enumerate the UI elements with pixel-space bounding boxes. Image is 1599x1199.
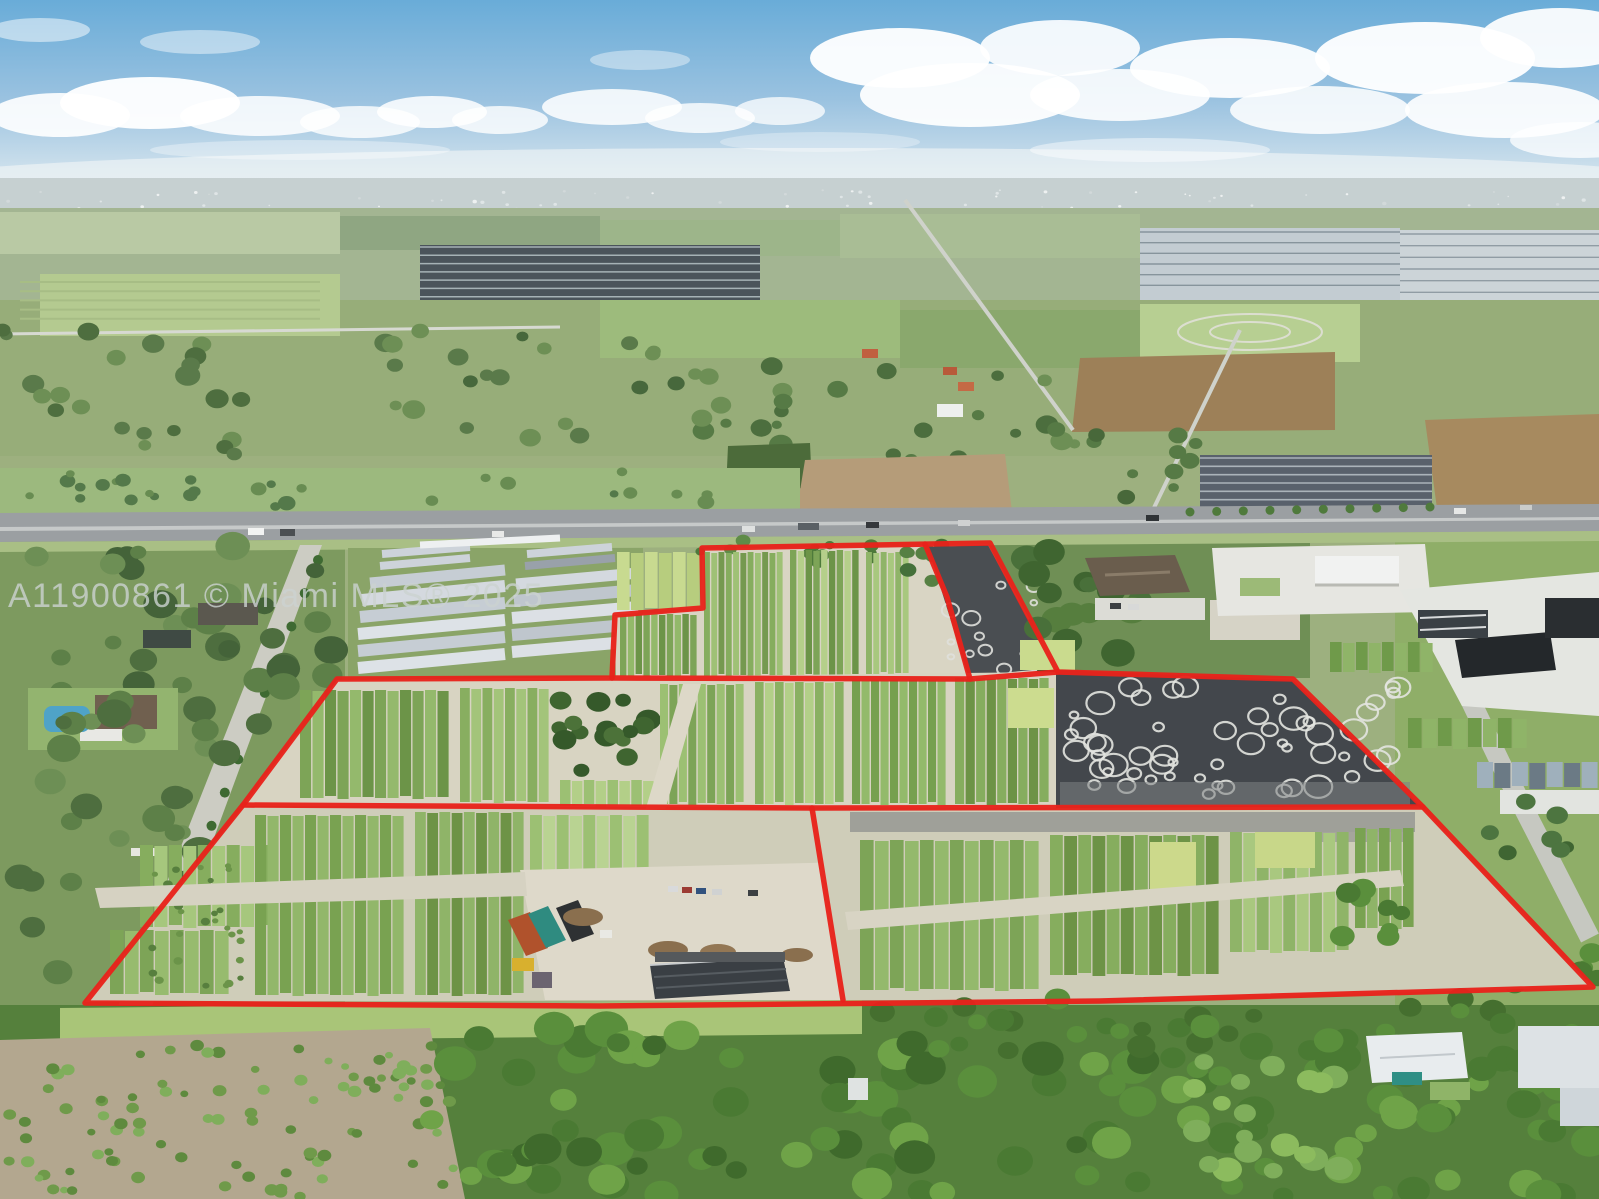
north-frontage-trees-item xyxy=(1101,639,1135,667)
orchard-dots-item xyxy=(237,929,243,934)
forest-canopy-item xyxy=(1335,1137,1364,1160)
distant-suburb-buildings-item xyxy=(1041,206,1043,208)
forest-canopy-item xyxy=(997,1146,1033,1175)
tree-cluster-item xyxy=(900,547,914,559)
palm-grove-light-item xyxy=(1183,1079,1206,1098)
tree-cluster-item xyxy=(647,346,661,357)
highway-median-trees-item xyxy=(1292,505,1301,514)
left-tree-canopy-item xyxy=(109,830,129,847)
cloud-wisp xyxy=(1030,138,1270,162)
distant-field xyxy=(340,216,600,250)
distant-suburb-buildings-item xyxy=(996,192,999,195)
black-shade-block xyxy=(1455,632,1556,678)
nursery-rows-row xyxy=(825,683,834,804)
tree-cluster-item xyxy=(411,324,429,338)
dirt-pile xyxy=(781,948,813,962)
nursery-stock-rows-row xyxy=(1453,719,1467,749)
nursery-stock-rows-row xyxy=(1421,643,1433,672)
nursery-rows-row xyxy=(775,682,784,802)
distant-suburb-buildings-item xyxy=(539,204,542,206)
tree-cluster-item xyxy=(1117,490,1135,505)
property-boundary-internal-3 xyxy=(243,805,1423,808)
nursery-rows-row xyxy=(873,553,879,674)
nursery-rows-row xyxy=(909,680,917,804)
nursery-rows-row xyxy=(821,550,827,675)
nursery-rows-row xyxy=(460,688,470,802)
orchard-tree-rows-item xyxy=(3,1109,16,1119)
shed-purple xyxy=(532,972,552,988)
distant-suburb-buildings-item xyxy=(964,204,967,207)
nursery-stock-rows-row xyxy=(1423,719,1437,748)
forest-fringe-item xyxy=(968,1014,986,1029)
distant-suburb-buildings-item xyxy=(140,205,144,208)
forest-fringe-item xyxy=(998,1042,1019,1059)
yellow-green-field-notch-row xyxy=(673,552,686,609)
tree-cluster-item xyxy=(621,336,638,350)
distant-suburb-buildings-item xyxy=(1497,204,1499,206)
forest-canopy-item xyxy=(524,1134,562,1165)
nursery-rows-row xyxy=(637,815,649,871)
distant-suburb-buildings-item xyxy=(1582,198,1586,201)
tree-cluster-item xyxy=(711,397,731,414)
orchard-tree-rows-item xyxy=(304,1148,318,1159)
distant-pasture xyxy=(0,212,340,254)
tree-cluster-item xyxy=(448,349,469,366)
tree-cluster-item xyxy=(1010,429,1021,438)
tree-cluster-item xyxy=(167,425,181,436)
tree-cluster-item xyxy=(114,422,130,435)
palm-grove-light-item xyxy=(1325,1157,1353,1180)
nursery-stock-rows-row xyxy=(1330,642,1342,672)
vehicle xyxy=(1520,505,1532,510)
hedge-row-item xyxy=(1516,794,1536,810)
nursery-rows-row xyxy=(393,816,404,994)
distant-suburb-buildings-item xyxy=(505,203,509,206)
nursery-stock-rows-row xyxy=(1343,643,1355,672)
palm-tree-row-item xyxy=(286,622,296,632)
orchard-tree-rows-item xyxy=(65,1168,74,1176)
palm-tree-row-item xyxy=(207,821,217,831)
distant-suburb-buildings-item xyxy=(39,191,42,193)
nursery-rows-row xyxy=(380,815,391,994)
nursery-rows xyxy=(790,550,859,677)
distant-suburb-buildings-item xyxy=(784,193,787,195)
nursery-rows-row xyxy=(293,816,304,996)
forest-canopy-item xyxy=(1435,1170,1461,1191)
forest-canopy-item xyxy=(607,1033,630,1052)
orchard-tree-rows-item xyxy=(203,1114,214,1123)
orchard-tree-rows-item xyxy=(324,1058,332,1065)
left-tree-canopy-item xyxy=(130,546,146,559)
tree-cluster-item xyxy=(142,335,164,353)
forest-canopy-item xyxy=(1355,1124,1377,1142)
forest-fringe-item xyxy=(928,1040,949,1057)
nursery-rows-row xyxy=(375,690,386,798)
orchard-block-dense-item xyxy=(622,725,638,738)
orchard-tree-rows-item xyxy=(87,1129,95,1136)
tree-cluster-item xyxy=(1168,428,1187,444)
tree-cluster-item xyxy=(1336,883,1361,903)
orchard-tree-rows-item xyxy=(98,1111,109,1120)
vehicle xyxy=(1110,603,1121,609)
tree-cluster-item xyxy=(827,381,848,398)
forest-fringe-item xyxy=(950,1037,968,1052)
nursery-rows-row xyxy=(439,812,450,993)
distant-suburb-buildings-item xyxy=(846,205,849,207)
palm-grove-light-item xyxy=(1294,1146,1316,1164)
nursery-rows-row xyxy=(740,553,746,675)
orchard-tree-rows-item xyxy=(126,1103,139,1113)
orchard-tree-rows-item xyxy=(92,1150,104,1160)
orchard-tree-rows-item xyxy=(408,1160,418,1168)
nursery-rows-row xyxy=(608,780,619,805)
orchard-tree-rows-item xyxy=(213,1085,227,1096)
left-tree-canopy-item xyxy=(260,628,285,649)
orchard-tree-rows-item xyxy=(449,1165,458,1173)
forest-canopy-item xyxy=(719,1048,744,1068)
orchard-tree-rows-item xyxy=(351,1129,362,1138)
left-tree-canopy-item xyxy=(130,649,157,672)
forest-fringe-item xyxy=(987,1009,1014,1031)
cloud xyxy=(452,106,548,134)
orchard-dots-item xyxy=(197,865,203,870)
tree-cluster-item xyxy=(490,369,510,385)
awning-teal xyxy=(1392,1072,1422,1085)
nursery-rows-row xyxy=(464,812,475,994)
distant-suburb-buildings-item xyxy=(1135,191,1138,193)
left-tree-canopy-item xyxy=(71,794,102,820)
nursery-rows xyxy=(415,812,524,996)
nursery-rows-row xyxy=(770,553,776,677)
left-tree-canopy-item xyxy=(35,769,66,795)
orchard-dots-item xyxy=(176,931,183,937)
forest-canopy-item xyxy=(1379,1096,1411,1122)
forest-fringe-item xyxy=(1245,1009,1262,1023)
nursery-rows-row xyxy=(620,614,626,676)
tree-row-north-of-highway-item xyxy=(426,496,439,506)
white-building-wing xyxy=(1560,1088,1599,1126)
orchard-tree-rows-item xyxy=(294,1075,307,1086)
orchard-tree-rows-item xyxy=(364,1076,376,1086)
orchard-tree-rows-item xyxy=(219,1181,231,1191)
tree-cluster-item xyxy=(699,368,719,384)
orchard-tree-rows-item xyxy=(309,1096,319,1104)
nursery-rows-row xyxy=(919,681,927,804)
parked-car xyxy=(682,887,692,893)
nursery-rows-row xyxy=(938,681,946,805)
forest-canopy-item xyxy=(1421,1108,1443,1126)
tree-cluster-item xyxy=(50,387,70,403)
tree-cluster-item xyxy=(720,419,731,428)
nursery-rows-row xyxy=(476,813,487,994)
left-tree-canopy-item xyxy=(142,805,175,832)
tree-cluster-item xyxy=(382,336,403,353)
nursery-rows-row xyxy=(881,681,889,805)
palm-grove-light-item xyxy=(1308,1072,1334,1093)
orchard-tree-rows-item xyxy=(157,1080,167,1088)
nursery-rows-row xyxy=(631,780,642,806)
orchard-block-dense-item xyxy=(573,764,589,777)
distant-suburb-buildings-item xyxy=(1118,205,1121,208)
tree-cluster-item xyxy=(33,389,51,404)
forest-canopy-item xyxy=(958,1065,997,1097)
nursery-rows-row xyxy=(987,679,996,805)
tree-row-north-of-highway-item xyxy=(115,474,131,487)
nursery-rows-row xyxy=(185,931,199,993)
nursery-rows-row xyxy=(777,552,783,675)
forest-canopy-item xyxy=(810,1127,839,1151)
parked-car xyxy=(748,890,758,896)
palm-grove-light-item xyxy=(1199,1156,1219,1173)
nursery-rows-row xyxy=(300,690,311,798)
nursery-rows-row xyxy=(363,691,374,797)
nursery-rows-row xyxy=(651,614,657,675)
orchard-tree-rows-item xyxy=(394,1094,404,1102)
nursery-rows-row xyxy=(852,680,860,804)
nursery-stock-rows-row xyxy=(1408,642,1420,672)
cloud xyxy=(1230,86,1410,134)
nursery-rows-row xyxy=(928,680,936,802)
distant-suburb-buildings-item xyxy=(268,205,270,206)
orchard-block-dense-item xyxy=(553,730,577,750)
left-tree-canopy-item xyxy=(20,917,45,938)
nursery-rows-row xyxy=(643,615,649,677)
orchard-dots-item xyxy=(223,983,230,989)
palm-grove-light-item xyxy=(1260,1056,1285,1076)
blue-gray-rows-row xyxy=(1529,763,1545,789)
orchard-tree-rows-item xyxy=(377,1074,386,1081)
forest-fringe-item xyxy=(1134,1022,1152,1036)
yellow-green-field-notch-row xyxy=(659,553,672,611)
orchard-tree-rows-item xyxy=(20,1133,32,1143)
distant-suburb-buildings-item xyxy=(1089,191,1092,194)
distant-suburb-buildings-item xyxy=(840,196,843,198)
nursery-rows-row xyxy=(388,691,399,798)
nursery-rows-row xyxy=(955,678,964,804)
left-tree-canopy-item xyxy=(43,960,72,984)
tree-cluster-item xyxy=(1047,422,1065,437)
tree-row-north-of-highway-item xyxy=(671,490,682,499)
frontage-lawn xyxy=(1240,578,1280,596)
tree-cluster-item xyxy=(1165,464,1184,479)
nursery-rows-row xyxy=(501,813,512,995)
nursery-stock-rows-row xyxy=(1382,642,1394,671)
palm-grove-light-item xyxy=(1234,1104,1256,1122)
aerial-photo-canvas: A11900861 © Miami MLS® 2025 xyxy=(0,0,1599,1199)
nursery-rows-row xyxy=(765,683,774,804)
tree-cluster-item xyxy=(1169,445,1186,459)
nursery-rows-row xyxy=(505,688,515,801)
tree-cluster-item xyxy=(1168,483,1179,492)
nursery-rows-row xyxy=(890,680,898,803)
nursery-rows-row xyxy=(785,683,794,805)
nursery-rows-row xyxy=(415,812,426,995)
distant-suburb-buildings-item xyxy=(441,199,443,201)
orchard-tree-rows-item xyxy=(281,1168,292,1177)
tree-cluster-item xyxy=(877,363,897,379)
nursery-rows-row xyxy=(560,780,571,806)
distant-suburb-buildings-item xyxy=(858,191,862,194)
orchard-tree-rows-item xyxy=(35,1175,44,1182)
nursery-rows-row xyxy=(733,552,739,675)
orchard-dots-item xyxy=(202,983,209,989)
dark-barn-roof xyxy=(1418,610,1488,638)
distant-suburb-buildings-item xyxy=(1305,194,1307,196)
loader-yellow xyxy=(512,958,534,971)
left-tree-canopy-item xyxy=(267,673,299,700)
residential-roof-orange xyxy=(958,382,974,391)
nursery-rows-row xyxy=(488,812,499,995)
forest-canopy-item xyxy=(1075,1165,1099,1185)
nursery-rows-row xyxy=(368,816,379,996)
nursery-rows-row xyxy=(140,930,154,992)
nursery-rows-row xyxy=(452,813,463,996)
distant-suburb-buildings-item xyxy=(563,190,566,192)
tree-row-north-of-highway-item xyxy=(270,502,280,511)
orchard-dots-item xyxy=(174,957,183,965)
left-tree-canopy-item xyxy=(51,650,70,666)
nursery-rows-row xyxy=(815,682,824,804)
nursery-rows-row xyxy=(719,552,725,674)
nursery-stock-rows-row xyxy=(1483,719,1497,747)
orchard-block-dense-item xyxy=(616,748,637,766)
tree-row-north-of-highway-item xyxy=(296,484,306,493)
orchard-tree-rows-item xyxy=(348,1086,362,1097)
distant-suburb-buildings-item xyxy=(851,190,854,192)
nursery-rows-row xyxy=(726,685,734,804)
nursery-rows-row xyxy=(155,931,169,995)
nursery-rows-row xyxy=(483,688,493,800)
nursery-rows-row xyxy=(806,550,812,674)
distant-suburb-buildings-item xyxy=(651,192,653,194)
tree-cluster-item xyxy=(914,423,933,438)
distant-suburb-buildings-item xyxy=(1346,193,1349,195)
patio-white xyxy=(80,729,122,741)
orchard-dots-item xyxy=(237,976,243,981)
forest-canopy-item xyxy=(1119,1086,1156,1117)
nursery-rows-row xyxy=(736,684,744,802)
orchard-tree-rows-item xyxy=(97,1096,106,1103)
forest-canopy-item xyxy=(702,1146,726,1166)
tree-cluster-item xyxy=(774,394,793,409)
vehicle xyxy=(866,522,879,528)
residential-roof-orange xyxy=(862,349,878,358)
nursery-rows-row xyxy=(528,688,538,802)
tree-row-north-of-highway-item xyxy=(185,475,196,484)
left-tree-canopy-item xyxy=(183,696,216,723)
tree-row-north-of-highway-item xyxy=(702,490,713,499)
distant-suburb-buildings-item xyxy=(157,194,160,196)
forest-fringe-item xyxy=(1399,998,1422,1017)
distant-suburb-buildings-item xyxy=(1213,197,1216,199)
orchard-tree-rows-item xyxy=(4,1157,15,1166)
nursery-stock-rows-row xyxy=(1395,643,1407,671)
tree-row-north-of-highway-item xyxy=(617,467,628,476)
forest-canopy-item xyxy=(588,1165,625,1195)
nursery-rows-row xyxy=(900,681,908,803)
blue-gray-rows-row xyxy=(1564,763,1580,787)
orchard-tree-rows-item xyxy=(242,1172,255,1182)
vehicle xyxy=(492,531,504,537)
orchard-block-dense-item xyxy=(615,694,631,707)
distant-suburb-buildings-item xyxy=(473,200,477,204)
nursery-rows-row xyxy=(530,815,542,873)
vehicle xyxy=(1146,515,1159,521)
distant-suburb-buildings-item xyxy=(1556,203,1559,206)
shade-cloth-fade xyxy=(1060,782,1410,806)
tree-cluster-item xyxy=(558,418,573,430)
orchard-tree-rows-item xyxy=(392,1068,406,1079)
orchard-tree-rows-item xyxy=(426,1041,438,1050)
orchard-block-dense-item xyxy=(550,692,572,710)
nursery-rows-row xyxy=(682,614,688,674)
nursery-rows-row xyxy=(790,550,796,676)
nursery-rows-row xyxy=(355,815,366,993)
orchard-tree-rows-item xyxy=(258,1085,270,1095)
forest-fringe-item xyxy=(1218,1026,1238,1042)
white-farm-house xyxy=(937,404,963,417)
distant-suburb-buildings-item xyxy=(378,206,380,208)
orchard-tree-rows-item xyxy=(131,1172,145,1183)
tree-cluster-item xyxy=(1038,375,1052,387)
distant-suburb-buildings-item xyxy=(214,192,218,195)
nursery-rows-row xyxy=(762,552,768,674)
yellow-green-block xyxy=(1255,832,1315,868)
blue-gray-rows xyxy=(1477,762,1598,789)
nursery-rows-row xyxy=(837,550,843,676)
cloud xyxy=(980,20,1140,76)
shade-house-complex-distant xyxy=(420,245,760,307)
distant-suburb-buildings-item xyxy=(6,200,10,203)
black-shade-block xyxy=(1545,598,1599,638)
hedge-row-item xyxy=(1551,842,1570,857)
distant-suburb-buildings-item xyxy=(1562,196,1566,199)
yellow-green-block xyxy=(1150,842,1196,890)
orchard-tree-rows-item xyxy=(133,1118,146,1129)
orchard-tree-rows-item xyxy=(293,1045,304,1054)
yellow-green-field-notch-row xyxy=(631,553,644,610)
orchard-dots-item xyxy=(155,977,164,984)
blue-gray-rows-row xyxy=(1547,762,1563,787)
highway-median-trees-item xyxy=(1372,504,1381,513)
distant-suburb-buildings-item xyxy=(208,194,210,195)
nursery-rows-row xyxy=(835,682,844,802)
nursery-rows-row xyxy=(255,815,266,995)
nursery-rows-row xyxy=(557,815,569,871)
nursery-rows-row xyxy=(690,615,696,677)
distant-suburb-buildings-item xyxy=(626,196,629,199)
left-tree-canopy-item xyxy=(246,713,272,734)
vehicle xyxy=(1128,604,1139,610)
distant-suburb-buildings-item xyxy=(1189,195,1191,197)
distant-suburb-buildings-item xyxy=(999,189,1001,191)
highway-median-trees-item xyxy=(1426,503,1435,512)
tree-cluster-item xyxy=(72,400,90,415)
orchard-tree-rows-item xyxy=(128,1093,137,1101)
nursery-rows-row xyxy=(583,815,595,872)
left-tree-canopy-item xyxy=(24,547,48,567)
frontage-building-white xyxy=(1315,556,1399,584)
left-tree-canopy-item xyxy=(192,719,219,741)
forest-layer xyxy=(0,988,1599,1199)
nursery-rows-row xyxy=(427,813,438,995)
tree-cluster-item xyxy=(232,392,250,407)
tilled-field-brown xyxy=(1425,414,1599,516)
orchard-tree-rows-item xyxy=(47,1184,59,1194)
distant-suburb-buildings-item xyxy=(1507,196,1509,197)
nursery-rows-row xyxy=(584,780,595,804)
orchard-dots-item xyxy=(201,918,210,926)
